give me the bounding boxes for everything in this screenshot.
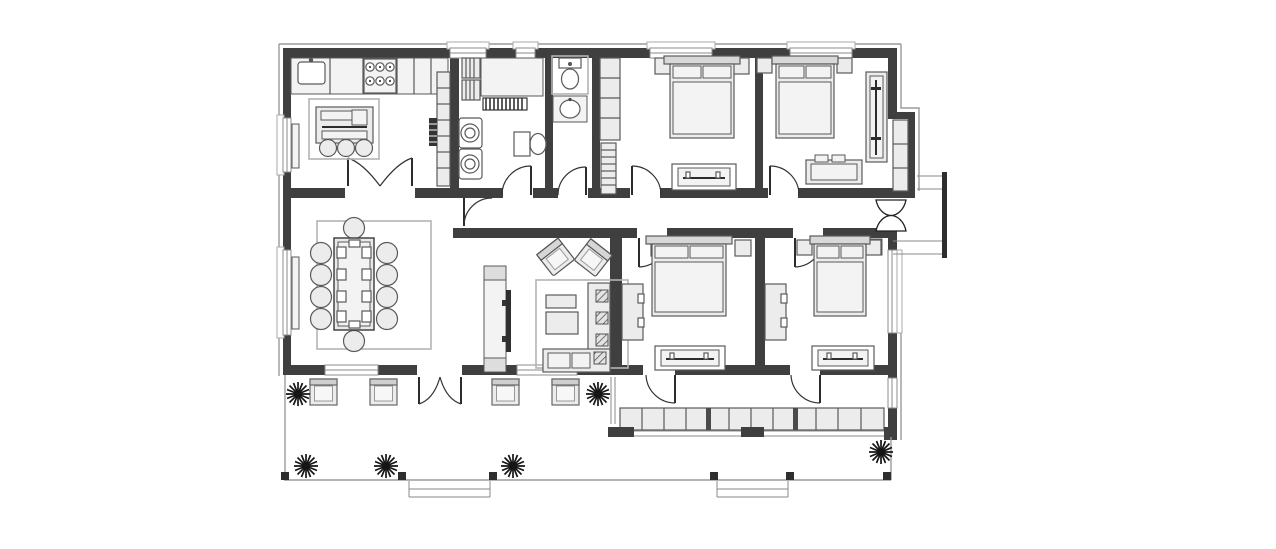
angled-armchair	[574, 239, 612, 277]
bedroom-3-south-door	[646, 375, 675, 403]
bedroom-1-door	[632, 166, 661, 195]
washing-machines	[459, 118, 482, 179]
dining-chair	[311, 309, 332, 330]
coffee-table	[546, 312, 578, 334]
closet	[765, 284, 787, 340]
terrace-armchair	[370, 379, 397, 405]
laundry-shelving	[462, 58, 480, 100]
closet	[622, 284, 644, 340]
laundry-counter	[481, 58, 543, 96]
window-bedroom-4	[888, 250, 902, 333]
dining-chair	[377, 265, 398, 286]
dresser	[806, 155, 862, 184]
built-in-wardrobe-row	[620, 408, 884, 430]
terrace-double-door	[419, 377, 461, 404]
kitchen-double-door	[348, 158, 412, 186]
entrance-swing-door-icon	[876, 200, 906, 231]
terrace-steps-right	[717, 481, 788, 497]
nightstand	[735, 240, 751, 256]
plant-icon	[286, 382, 310, 406]
wc-toilet	[559, 58, 581, 89]
floor-plan-drawing	[0, 0, 1276, 549]
terrace-armchair	[552, 379, 579, 405]
tv-console	[484, 266, 511, 372]
stool	[356, 140, 373, 157]
dining-chair	[377, 287, 398, 308]
window-kitchen	[277, 115, 299, 175]
built-in-closet	[893, 120, 908, 191]
dining-chair	[311, 265, 332, 286]
dining-table	[334, 238, 374, 330]
bed	[772, 56, 838, 138]
bedroom-3	[622, 236, 751, 370]
dining-hall-door	[464, 198, 492, 226]
dining-chair	[377, 309, 398, 330]
wc	[552, 56, 588, 122]
dining-chair	[377, 243, 398, 264]
radiator	[483, 98, 527, 110]
coffee-table	[546, 295, 576, 308]
foot-bench	[672, 164, 736, 190]
dining-chair	[311, 243, 332, 264]
kitchen-vent	[429, 118, 437, 146]
bedroom-2	[757, 56, 908, 191]
nightstand	[837, 58, 852, 73]
living-room	[484, 238, 628, 372]
wc-washbasin	[553, 96, 587, 122]
plant-icon	[374, 454, 398, 478]
sliding-wardrobe	[866, 72, 887, 162]
kitchen-island	[309, 99, 379, 159]
window-wc	[513, 42, 538, 58]
window-laundry	[447, 42, 489, 58]
dining-chair	[344, 331, 365, 352]
terrace-armchair	[310, 379, 337, 405]
nightstand	[757, 58, 772, 73]
dining-chair	[344, 218, 365, 239]
window-dining	[277, 247, 299, 338]
kitchen	[291, 58, 450, 186]
laundry-room	[459, 58, 546, 179]
south-corridor	[608, 408, 894, 440]
dining-room	[311, 218, 432, 352]
plant-icon	[869, 440, 893, 464]
terrace-steps-left	[409, 481, 490, 497]
wc-door	[558, 167, 586, 195]
floor-plan-canvas	[0, 0, 1276, 549]
dining-chair	[311, 287, 332, 308]
foot-bench	[655, 346, 725, 370]
window-corridor-east	[888, 378, 897, 408]
bed	[646, 236, 732, 316]
plant-icon	[294, 454, 318, 478]
plant-icon	[501, 454, 525, 478]
bed	[810, 236, 870, 316]
tv-screen	[506, 290, 511, 352]
bed	[664, 56, 740, 138]
bedroom-4-south-door	[791, 375, 820, 403]
laundry-door	[502, 166, 531, 195]
ladder-shelf	[601, 143, 616, 194]
terrace-posts	[281, 472, 891, 480]
plant-icon	[586, 382, 610, 406]
stool	[320, 140, 337, 157]
angled-armchair	[537, 238, 575, 276]
stool	[338, 140, 355, 157]
laundry-toilet	[514, 132, 546, 156]
window-corridor-west	[611, 377, 615, 424]
foot-bench	[812, 346, 874, 370]
bedroom-1-wardrobe	[600, 58, 620, 140]
kitchen-tall-cabinet	[437, 72, 450, 186]
bedroom-1	[600, 56, 749, 194]
bedroom-4	[765, 236, 881, 370]
kitchen-sink	[298, 62, 325, 84]
terrace-armchair	[492, 379, 519, 405]
window-dining-south	[325, 365, 378, 375]
bedroom-2-door	[770, 166, 799, 195]
